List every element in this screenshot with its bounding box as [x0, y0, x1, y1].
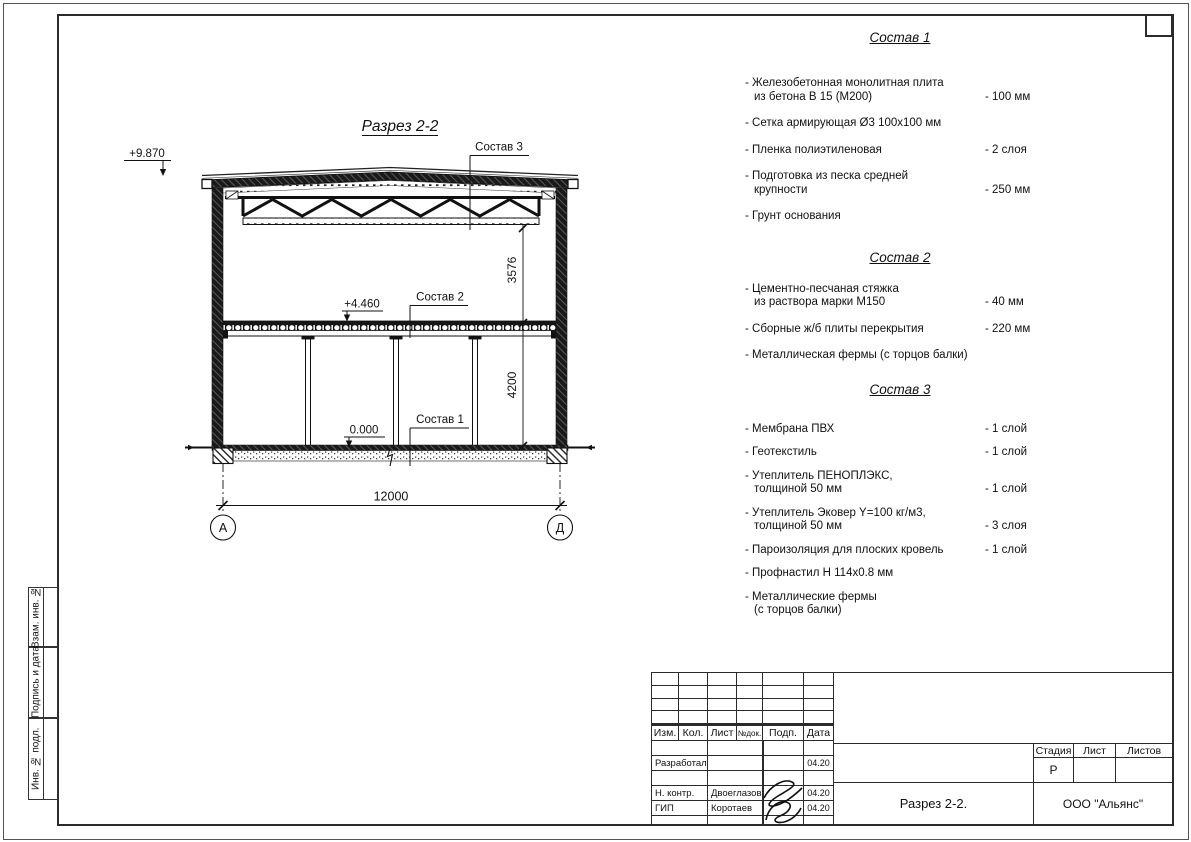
- revision-cell: [652, 699, 679, 712]
- tb-name-nkontr: Двоеглазов: [707, 785, 764, 801]
- revision-grid: [651, 672, 834, 725]
- revision-cell: [652, 686, 679, 699]
- tb-role-razrabotal: Разработал: [651, 755, 708, 771]
- spec-item: - Грунт основания: [745, 210, 1175, 224]
- revision-cell: [804, 699, 833, 712]
- tb-sheets-value: [1115, 757, 1173, 783]
- tb-date-nkontr: 04.20: [803, 785, 834, 801]
- tb-header-ndok: №док.: [736, 725, 763, 741]
- tb-sign-gip: [762, 800, 804, 816]
- tb-company: ООО "Альянс": [1033, 782, 1173, 825]
- tb-header-kol: Кол.: [678, 725, 708, 741]
- tb-blank: [651, 740, 708, 756]
- spec-panel: Состав 1- Железобетонная монолитная плит…: [745, 30, 1175, 628]
- spec-item: - Цементно-песчаная стяжкаиз раствора ма…: [745, 283, 1175, 310]
- spec-heading: Состав 1: [745, 30, 1055, 47]
- spec-item: - Железобетонная монолитная плитаиз бето…: [745, 77, 1175, 104]
- spec-heading: Состав 2: [745, 250, 1055, 267]
- revision-cell: [737, 673, 763, 686]
- revision-cell: [763, 699, 804, 712]
- tb-header-izm: Изм.: [651, 725, 679, 741]
- sidebar-label-inv: Инв. № подл.: [29, 719, 43, 799]
- spec-item: - Сборные ж/б плиты перекрытия- 220 мм: [745, 323, 1175, 337]
- sidebar-divider: [43, 719, 44, 799]
- revision-cell: [737, 711, 763, 724]
- revision-cell: [679, 686, 708, 699]
- revision-cell: [652, 673, 679, 686]
- tb-role-gip: ГИП: [651, 800, 708, 816]
- sidebar-divider: [43, 588, 44, 646]
- spec-item: - Геотекстиль- 1 слой: [745, 446, 1175, 460]
- spec-item: - Пароизоляция для плоских кровель- 1 сл…: [745, 544, 1175, 558]
- spec-section: Состав 1- Железобетонная монолитная плит…: [745, 30, 1175, 224]
- drawing-sheet: Взам. инв. № Подпись и дата Инв. № подл.: [0, 0, 1191, 842]
- spec-item: - Мембрана ПВХ- 1 слой: [745, 423, 1175, 437]
- spec-item: - Сетка армирующая Ø3 100х100 мм: [745, 117, 1175, 131]
- spec-item: - Подготовка из песка среднейкрупности- …: [745, 170, 1175, 197]
- tb-blank: [651, 770, 708, 786]
- spec-heading: Состав 3: [745, 382, 1055, 399]
- tb-blank: [762, 740, 804, 756]
- tb-sign-razrabotal: [762, 755, 804, 771]
- tb-designation-cell: [833, 672, 1173, 744]
- tb-role-nkontr: Н. контр.: [651, 785, 708, 801]
- tb-blank: [707, 770, 764, 786]
- revision-cell: [763, 711, 804, 724]
- tb-blank: [762, 770, 804, 786]
- revision-cell: [737, 686, 763, 699]
- tb-blank: [803, 740, 834, 756]
- tb-blank: [651, 815, 708, 826]
- revision-cell: [804, 673, 833, 686]
- revision-cell: [804, 711, 833, 724]
- revision-cell: [679, 673, 708, 686]
- sidebar-label-podpis: Подпись и дата: [29, 648, 43, 717]
- tb-doc-title: Разрез 2-2.: [833, 782, 1034, 825]
- spec-item: - Утеплитель ПЕНОПЛЭКС,толщиной 50 мм- 1…: [745, 470, 1175, 497]
- sidebar-cell-vzam: Взам. инв. №: [28, 587, 58, 647]
- tb-stage-label: Стадия: [1033, 743, 1074, 758]
- tb-header-data: Дата: [803, 725, 834, 741]
- revision-cell: [804, 686, 833, 699]
- tb-blank: [707, 815, 764, 826]
- spec-section: Состав 2- Цементно-песчаная стяжкаиз рас…: [745, 250, 1175, 363]
- tb-sign-nkontr: [762, 785, 804, 801]
- revision-cell: [737, 699, 763, 712]
- revision-cell: [708, 673, 737, 686]
- tb-header-podp: Подп.: [762, 725, 804, 741]
- spec-item: - Утеплитель Эковер Y=100 кг/м3,толщиной…: [745, 507, 1175, 534]
- tb-name-razrabotal: [707, 755, 764, 771]
- revision-cell: [708, 686, 737, 699]
- tb-header-list: Лист: [707, 725, 737, 741]
- tb-name-gip: Коротаев: [707, 800, 764, 816]
- revision-cell: [652, 711, 679, 724]
- revision-cell: [763, 673, 804, 686]
- tb-blank: [803, 815, 834, 826]
- tb-date-gip: 04.20: [803, 800, 834, 816]
- tb-date-razrabotal: 04.20: [803, 755, 834, 771]
- tb-blank: [762, 815, 804, 826]
- tb-stage-value: Р: [1033, 757, 1074, 783]
- tb-sheet-label: Лист: [1073, 743, 1116, 758]
- revision-cell: [763, 686, 804, 699]
- spec-section: Состав 3- Мембрана ПВХ- 1 слой- Геотекст…: [745, 382, 1175, 618]
- sidebar-divider: [43, 648, 44, 717]
- revision-cell: [708, 699, 737, 712]
- tb-blank: [707, 740, 764, 756]
- sidebar-cell-podpis: Подпись и дата: [28, 647, 58, 718]
- tb-blank: [803, 770, 834, 786]
- revision-cell: [679, 699, 708, 712]
- revision-cell: [679, 711, 708, 724]
- sidebar-cell-inv: Инв. № подл.: [28, 718, 58, 800]
- sidebar-label-vzam: Взам. инв. №: [29, 588, 43, 646]
- revision-cell: [708, 711, 737, 724]
- tb-sheet-value: [1073, 757, 1116, 783]
- tb-blank: [833, 743, 1034, 783]
- spec-item: - Профнастил Н 114х0.8 мм: [745, 567, 1175, 581]
- spec-item: - Пленка полиэтиленовая- 2 слоя: [745, 144, 1175, 158]
- spec-item: - Металлические фермы(с торцов балки): [745, 591, 1175, 618]
- spec-item: - Металлическая фермы (с торцов балки): [745, 349, 1175, 363]
- tb-sheets-label: Листов: [1115, 743, 1173, 758]
